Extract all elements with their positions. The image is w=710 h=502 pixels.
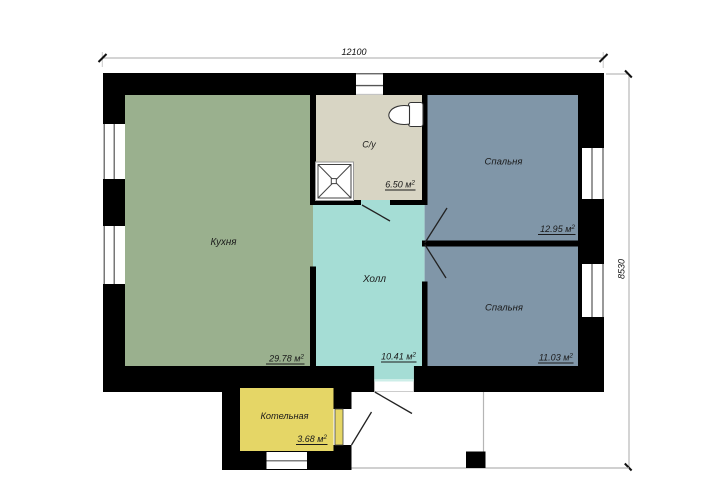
svg-text:12.95 м2: 12.95 м2: [540, 224, 575, 234]
svg-text:Кухня: Кухня: [210, 237, 237, 248]
svg-text:10.41 м2: 10.41 м2: [381, 352, 416, 362]
svg-text:С/у: С/у: [362, 140, 376, 150]
svg-text:29.78 м2: 29.78 м2: [268, 354, 304, 364]
svg-text:Холл: Холл: [362, 274, 386, 285]
svg-text:8530: 8530: [617, 259, 627, 279]
svg-text:Котельная: Котельная: [260, 411, 308, 421]
svg-text:3.68 м2: 3.68 м2: [297, 434, 327, 444]
svg-text:11.03 м2: 11.03 м2: [539, 353, 574, 363]
svg-text:Спальня: Спальня: [485, 303, 523, 314]
svg-text:6.50 м2: 6.50 м2: [385, 180, 415, 190]
svg-text:Спальня: Спальня: [485, 157, 523, 168]
svg-text:12100: 12100: [341, 47, 366, 57]
